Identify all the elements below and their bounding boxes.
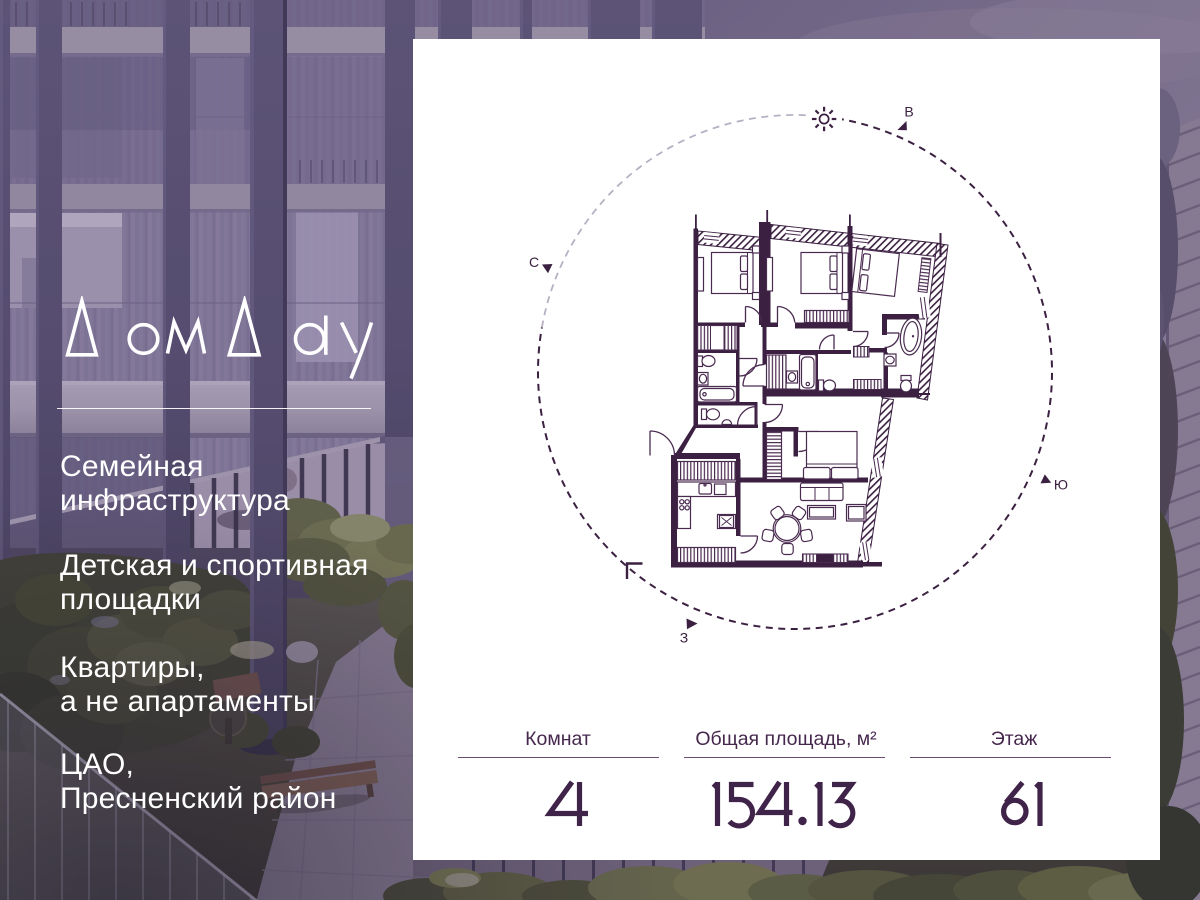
svg-text:С: С	[529, 254, 539, 270]
svg-text:З: З	[680, 630, 688, 646]
svg-text:Ю: Ю	[1054, 477, 1068, 493]
svg-text:В: В	[904, 104, 913, 120]
